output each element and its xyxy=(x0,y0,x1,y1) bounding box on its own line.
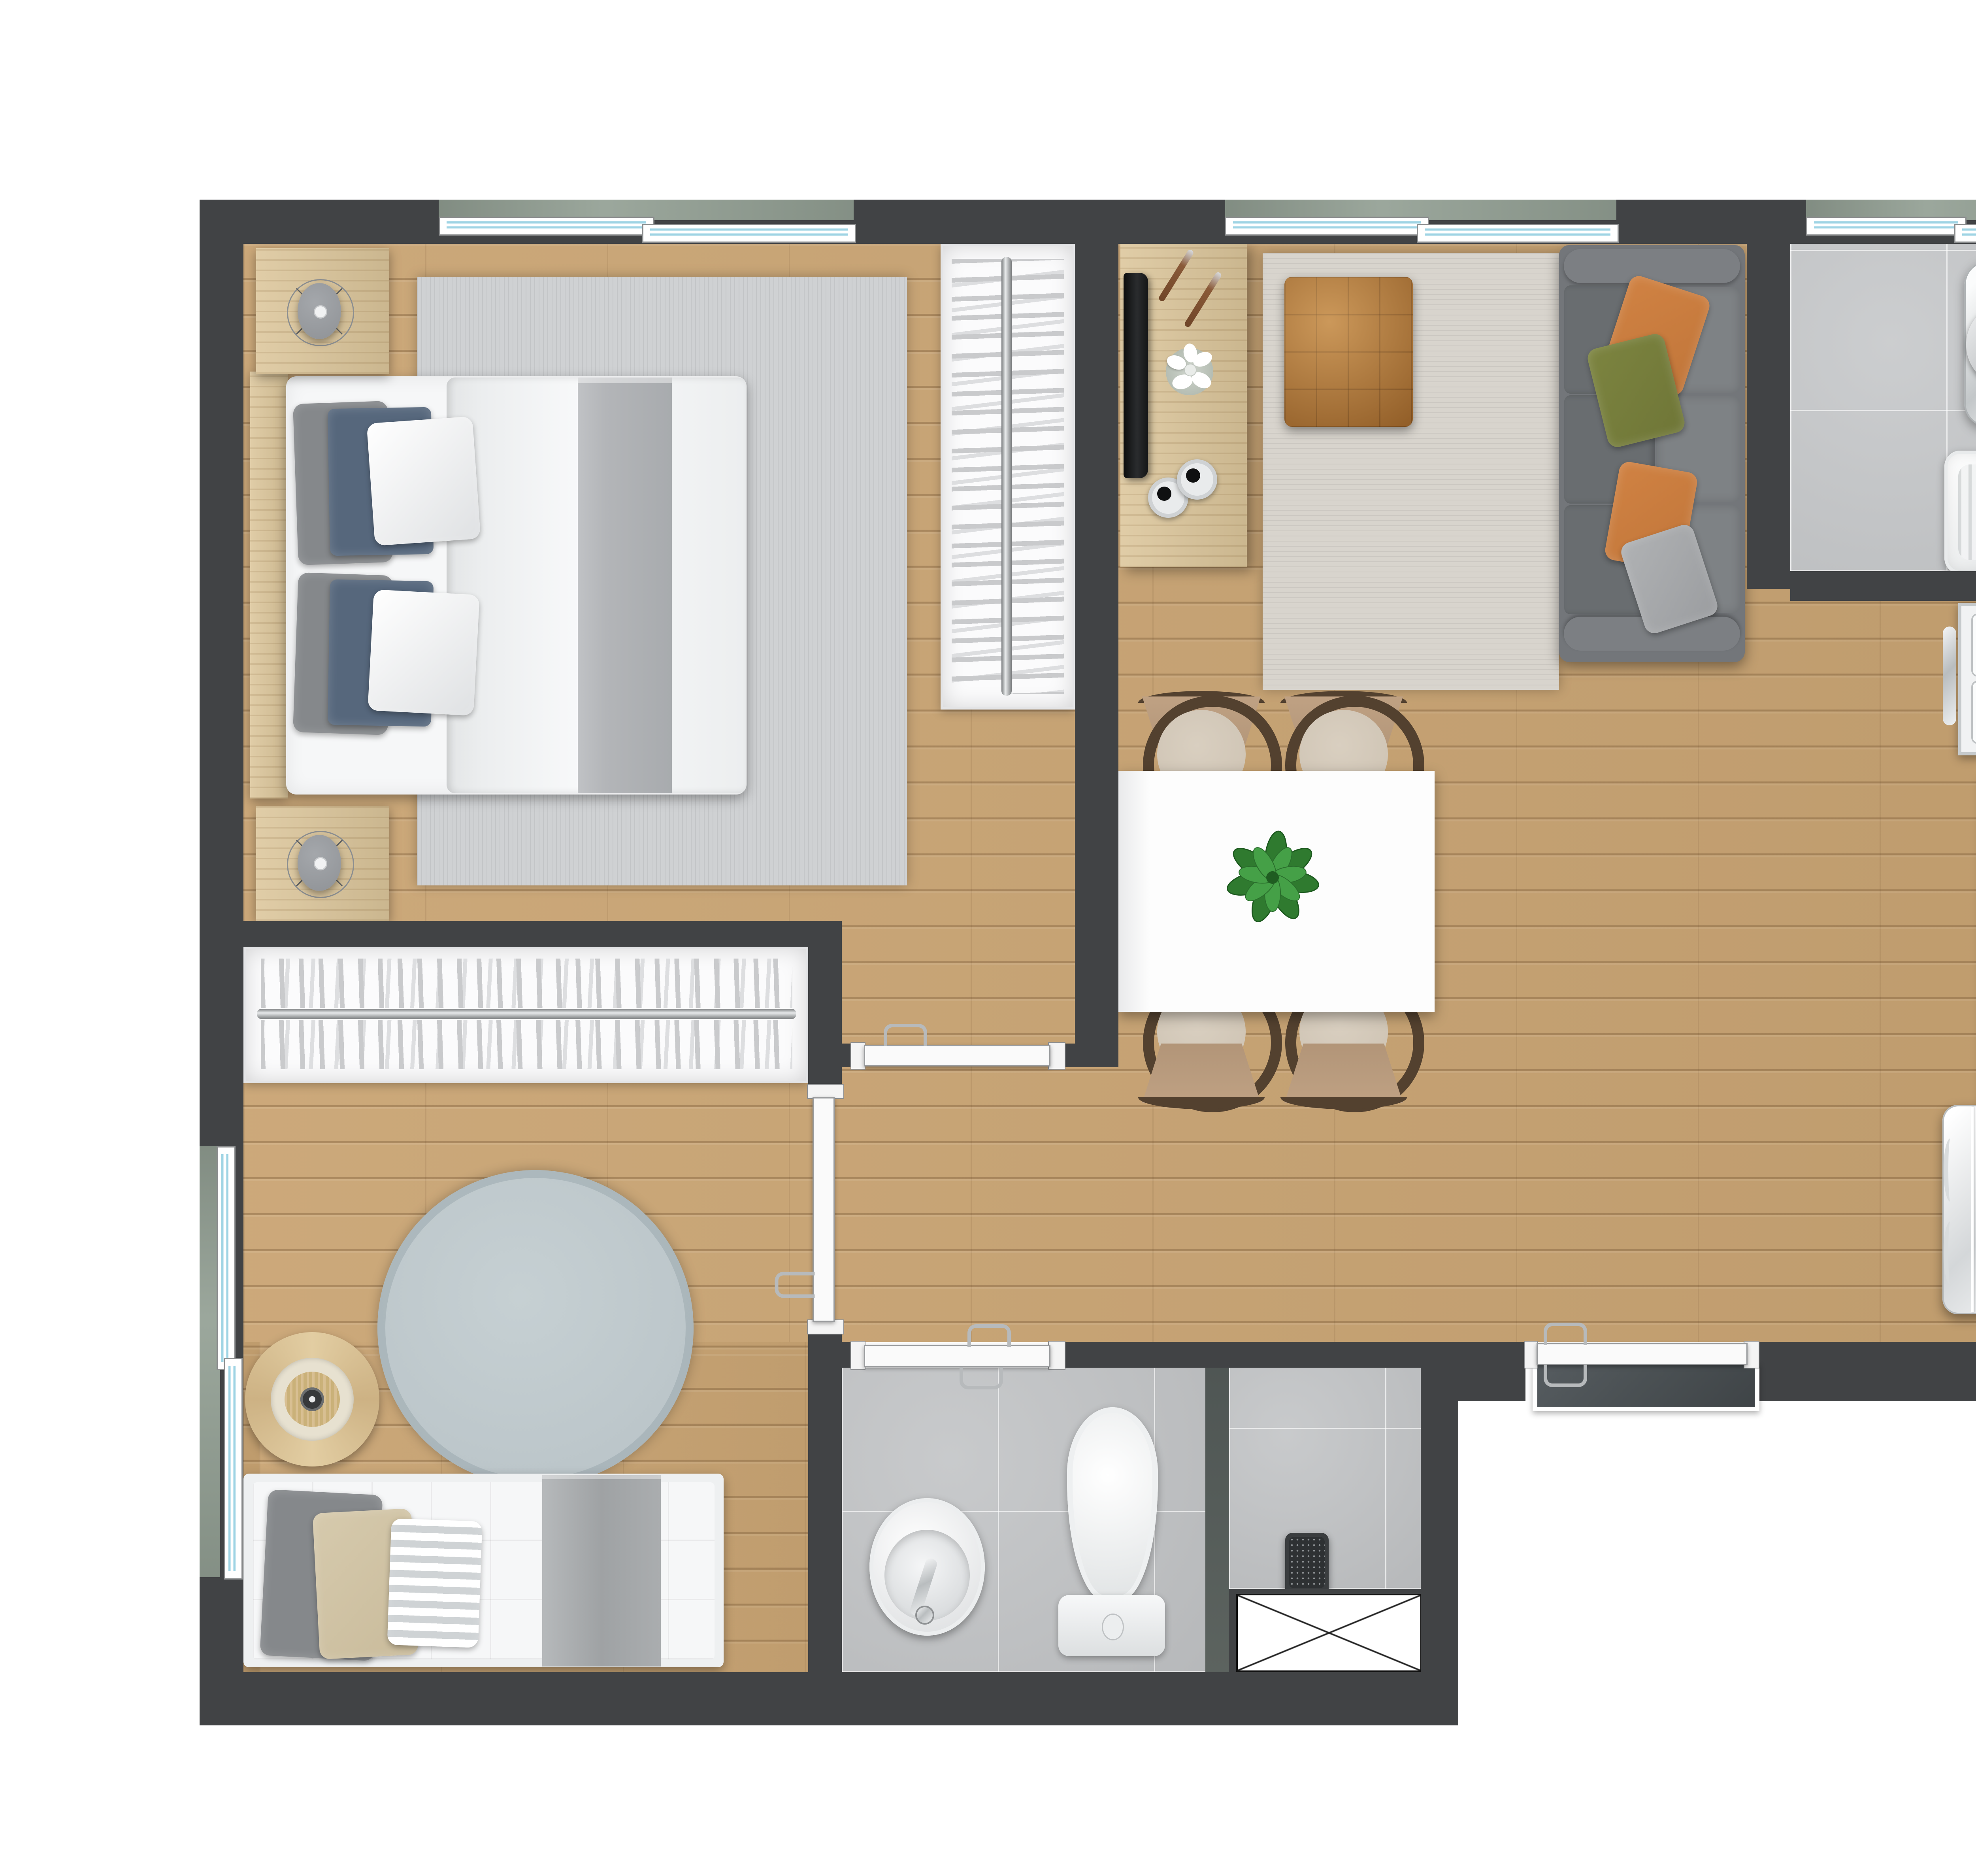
bathroom-door-leaf xyxy=(864,1345,1050,1367)
wall-bedroom2-hall-b xyxy=(808,1320,842,1672)
toilet-bowl xyxy=(1067,1407,1158,1601)
flower-center xyxy=(1184,364,1197,376)
entry-door-leaf xyxy=(1537,1343,1748,1365)
bathroom-door-handle-inside xyxy=(960,1367,1003,1389)
living-window-glass-b xyxy=(1425,228,1610,236)
bedroom2-round-rug xyxy=(377,1170,694,1486)
bed2-blanket xyxy=(542,1475,661,1667)
wall-bedroom1-living xyxy=(1075,200,1118,1067)
shower-partition xyxy=(1205,1368,1229,1672)
bathroom-sink-faucet-knob xyxy=(915,1606,934,1625)
speaker-1-core xyxy=(1157,487,1171,501)
closet-bedroom2-hangers-top xyxy=(261,959,792,1008)
tv xyxy=(1124,273,1148,478)
ottoman xyxy=(1284,277,1413,427)
bedroom2-door-jamb-top xyxy=(807,1084,844,1099)
bedroom2-door-handle xyxy=(775,1272,815,1298)
laundry-tank-washboard xyxy=(1958,464,1976,560)
bedroom1-door-jamb-left xyxy=(850,1042,865,1070)
wall-kitchen-partition xyxy=(1747,200,1790,589)
bedroom1-door-leaf xyxy=(864,1045,1050,1066)
bathroom-shaft-x xyxy=(1236,1594,1422,1672)
lamp-top-finial xyxy=(314,305,327,319)
wardrobe-bedroom1-rail xyxy=(1001,257,1012,696)
speaker-2-core xyxy=(1186,468,1200,483)
wall-bedroom1-bottom xyxy=(200,921,808,947)
entry-door-handle-outside xyxy=(1544,1365,1587,1387)
bedroom-window-glass-b xyxy=(650,228,848,236)
dining-chair-bottom-right-back xyxy=(1284,1044,1403,1103)
bedroom2-door-leaf xyxy=(813,1097,835,1322)
wall-bedroom2-hall-a xyxy=(808,921,842,1097)
cooktop-handle xyxy=(1943,627,1956,725)
bathroom-door-jamb-right xyxy=(1048,1341,1065,1370)
kitchen-window-glass-a xyxy=(1814,221,1958,228)
refrigerator-handle-1 xyxy=(1944,1138,1957,1202)
bed2-pillow-striped xyxy=(387,1518,482,1648)
dining-chair-bottom-left-back xyxy=(1142,1044,1261,1103)
lamp-bottom-finial xyxy=(314,857,327,870)
bedroom1-door-jamb-right xyxy=(1048,1042,1065,1070)
entry-door-handle-inside xyxy=(1544,1323,1587,1345)
wall-bathroom-top-b xyxy=(1049,1342,1421,1368)
bedroom2-window-glass-b xyxy=(228,1366,236,1571)
wall-bottom-left xyxy=(200,1672,1458,1725)
bedroom1-door-handle xyxy=(884,1024,927,1046)
wall-bottom-right-a xyxy=(1458,1342,1525,1401)
sofa-armrest-top xyxy=(1564,249,1740,283)
bathroom-door-jamb-left xyxy=(850,1341,865,1370)
bed1-pillow-white-top xyxy=(367,416,481,546)
closet-bedroom2-hangers-bottom xyxy=(261,1020,792,1069)
potted-plant xyxy=(1221,826,1324,929)
wall-laundry-divider xyxy=(1790,571,1976,601)
entry-door-jamb-left xyxy=(1524,1341,1538,1368)
bed1-blanket xyxy=(578,377,672,793)
refrigerator-hinge-line xyxy=(1971,1107,1974,1312)
toilet-flush-button xyxy=(1102,1614,1124,1640)
floor-plan xyxy=(0,0,1976,1876)
bed1-headboard xyxy=(250,372,288,798)
bed1-pillow-white-bottom xyxy=(368,589,480,716)
wall-step xyxy=(1421,1342,1458,1725)
bedroom2-window-glass-a xyxy=(221,1154,228,1362)
wall-bottom-right-b xyxy=(1757,1342,1976,1401)
kitchen-window-glass-b xyxy=(1962,228,1976,236)
bathroom-door-handle-outside xyxy=(967,1324,1011,1347)
side-table-cup-dot xyxy=(309,1396,315,1402)
shower-head-dots xyxy=(1289,1537,1325,1588)
closet-bedroom2-rail xyxy=(257,1009,796,1019)
refrigerator-handle-2 xyxy=(1944,1221,1957,1285)
living-window-glass-a xyxy=(1233,221,1421,228)
burner-3 xyxy=(1971,681,1976,744)
bedroom-window-glass-a xyxy=(447,221,646,228)
burner-1 xyxy=(1971,613,1976,677)
